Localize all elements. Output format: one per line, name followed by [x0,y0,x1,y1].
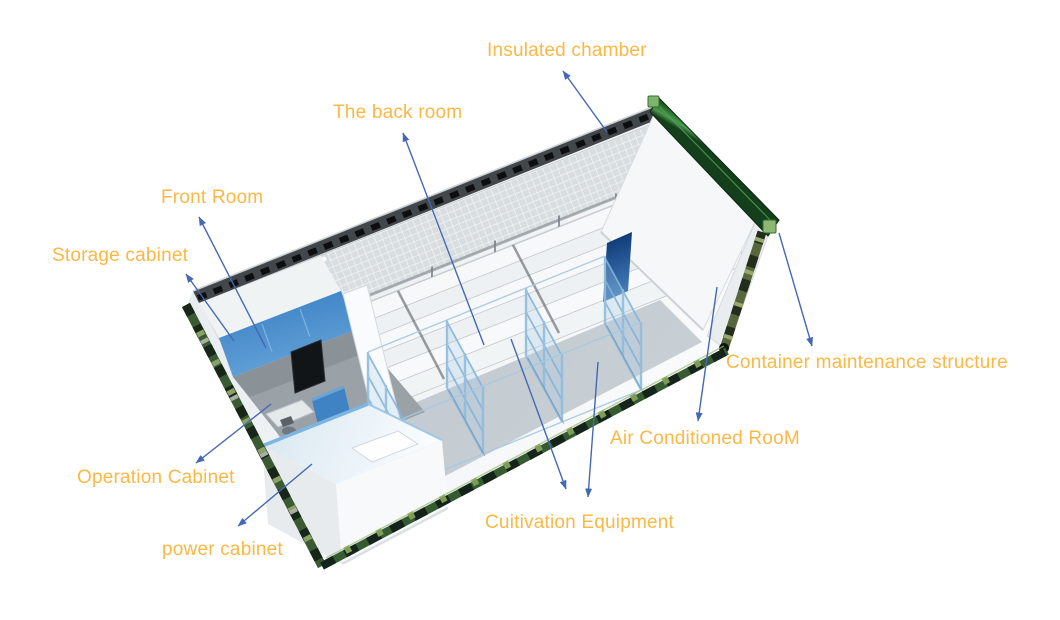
label-power-cabinet: power cabinet [162,539,283,561]
arrow-container-maintenance [779,233,812,346]
arrow-insulated-chamber [563,71,607,132]
label-back-room: The back room [333,102,462,124]
label-container-maintenance-structure: Container maintenance structure [726,352,1008,374]
corner-casting-top [648,96,659,107]
corner-casting-right [763,220,776,233]
label-air-conditioned-room: Air Conditioned RooM [610,428,800,450]
label-insulated-chamber: Insulated chamber [487,40,647,62]
label-operation-cabinet: Operation Cabinet [77,467,235,489]
label-front-room: Front Room [161,187,263,209]
label-storage-cabinet: Storage cabinet [52,245,188,267]
label-cultivation-equipment: Cuitivation Equipment [485,512,674,534]
diagram-canvas: Insulated chamber The back room Front Ro… [0,0,1060,620]
